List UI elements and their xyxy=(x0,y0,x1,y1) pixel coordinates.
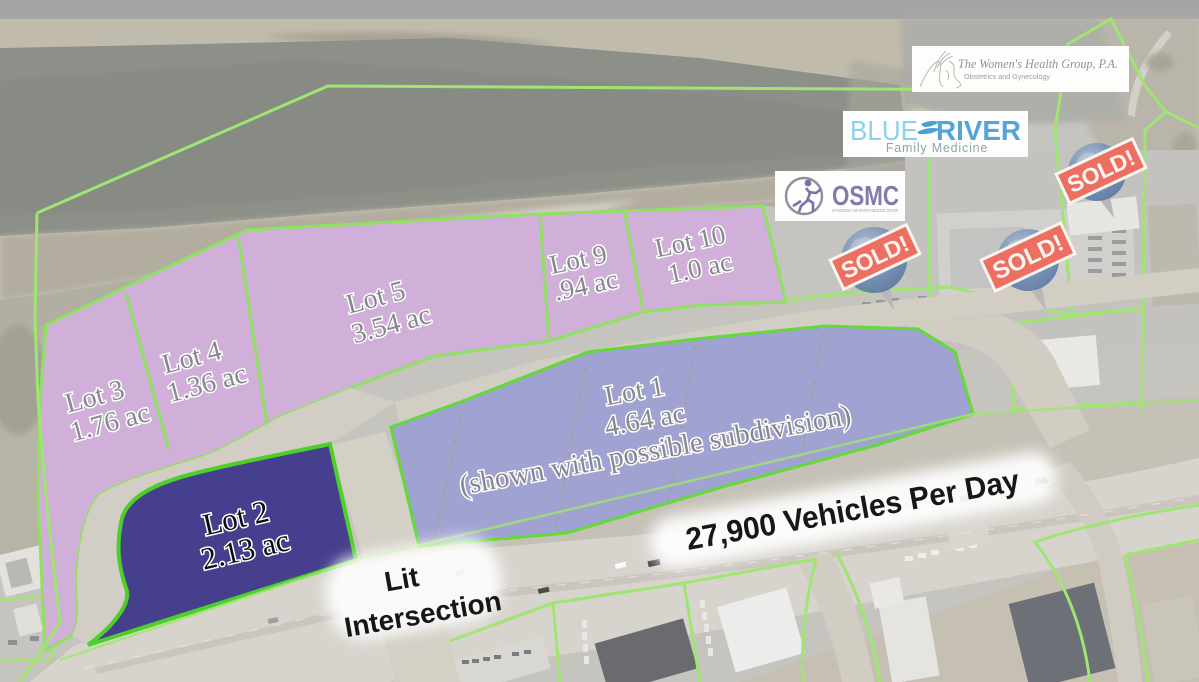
svg-text:Family Medicine: Family Medicine xyxy=(886,141,988,155)
svg-text:ORTHOPEDIC AND SPORTS MEDICINE: ORTHOPEDIC AND SPORTS MEDICINE CENTER xyxy=(832,208,898,213)
svg-text:The Women's Health Group, P.A.: The Women's Health Group, P.A. xyxy=(958,57,1118,71)
svg-text:Lit: Lit xyxy=(382,561,421,597)
svg-text:Obstetrics and Gynecology: Obstetrics and Gynecology xyxy=(964,74,1051,81)
svg-text:OSMC: OSMC xyxy=(832,180,899,211)
